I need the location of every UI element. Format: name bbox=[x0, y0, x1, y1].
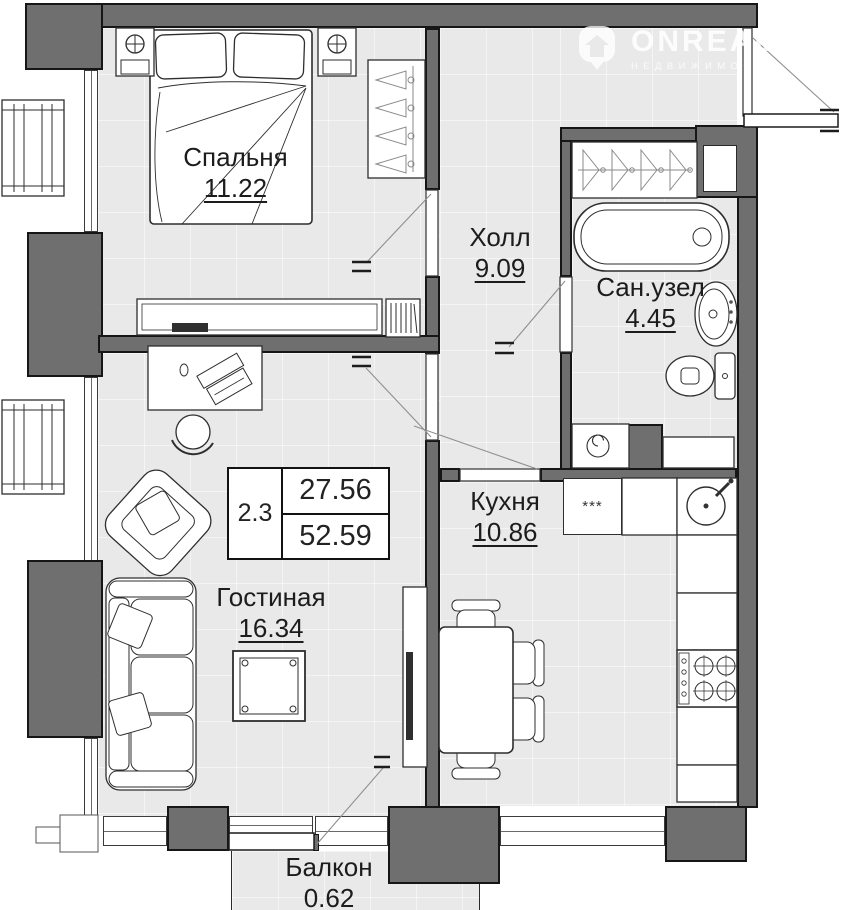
washing-machine-icon bbox=[572, 424, 629, 468]
stove-icon bbox=[677, 650, 737, 707]
exterior-window-lower-icon bbox=[2, 400, 64, 494]
exterior-window-upper-icon bbox=[2, 100, 64, 196]
kitchen-name: Кухня bbox=[470, 486, 540, 517]
balcony-door bbox=[229, 833, 314, 850]
living-area: 16.34 bbox=[238, 613, 303, 644]
dining-table-icon bbox=[439, 600, 544, 779]
living-name: Гостиная bbox=[216, 582, 325, 613]
living-area-total: 27.56 bbox=[283, 469, 388, 515]
fridge-symbol: *** bbox=[582, 498, 603, 515]
bathroom-area: 4.45 bbox=[625, 303, 676, 334]
hall-name: Холл bbox=[469, 222, 530, 253]
unit-code: 2.3 bbox=[229, 469, 283, 558]
toilet-icon bbox=[666, 353, 735, 399]
towel-radiator-icon bbox=[572, 142, 697, 198]
armchair-icon bbox=[99, 464, 218, 583]
desk-icon bbox=[148, 346, 262, 410]
bathroom-label: Сан.узел 4.45 bbox=[578, 272, 723, 333]
kitchen-door bbox=[460, 469, 540, 481]
exterior-step-icon bbox=[36, 815, 98, 852]
kitchen-cabinets-icon bbox=[622, 478, 737, 802]
balcony-name: Балкон bbox=[285, 852, 372, 883]
bathroom-name: Сан.узел bbox=[596, 272, 705, 303]
shelf-books-icon bbox=[386, 299, 420, 337]
floor-plan: *** Спальня 11.22 Холл 9.09 Сан.узел 4.4… bbox=[0, 0, 841, 910]
wardrobe-hangers-icon bbox=[368, 60, 425, 178]
plan-linework bbox=[0, 0, 841, 910]
kitchen-area: 10.86 bbox=[472, 517, 537, 548]
nightstand-left-icon bbox=[116, 28, 154, 76]
total-area: 52.59 bbox=[283, 515, 388, 559]
bathroom-door bbox=[560, 277, 572, 352]
bathtub-icon bbox=[574, 203, 729, 271]
balcony-label: Балкон 0.62 bbox=[254, 852, 404, 910]
apartment-stats-table: 2.3 27.56 52.59 bbox=[227, 467, 390, 560]
bedroom-area: 11.22 bbox=[204, 173, 267, 204]
hall-label: Холл 9.09 bbox=[430, 222, 570, 283]
kitchen-label: Кухня 10.86 bbox=[435, 486, 575, 547]
sofa-icon bbox=[106, 578, 196, 790]
living-label: Гостиная 16.34 bbox=[196, 582, 346, 643]
hall-area: 9.09 bbox=[475, 253, 526, 284]
dresser-icon bbox=[137, 299, 382, 335]
tv-stand-icon bbox=[403, 587, 427, 767]
desk-chair-icon bbox=[172, 415, 213, 454]
bath-cabinet-icon bbox=[663, 437, 734, 468]
living-door bbox=[426, 354, 438, 440]
bedroom-name: Спальня bbox=[183, 142, 287, 173]
nightstand-right-icon bbox=[318, 28, 356, 76]
balcony-area: 0.62 bbox=[304, 883, 355, 910]
entry-door bbox=[744, 114, 838, 127]
bedroom-label: Спальня 11.22 bbox=[148, 142, 323, 203]
entry-door-frame bbox=[743, 28, 752, 116]
coffee-table-icon bbox=[233, 651, 305, 721]
